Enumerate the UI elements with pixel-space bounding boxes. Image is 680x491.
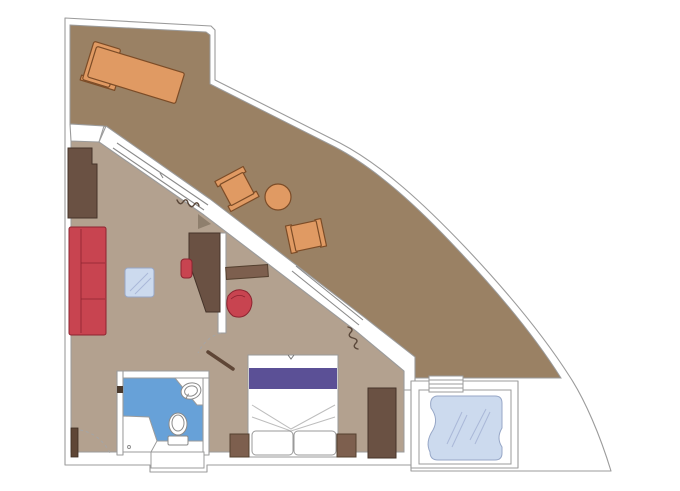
pillow-right (294, 431, 336, 455)
whirlpool-deck (411, 376, 518, 468)
bathroom-door-mark (117, 386, 123, 393)
bathroom-wall-right (203, 378, 209, 455)
glass-coffee-table (125, 268, 154, 297)
desk-chair (181, 259, 192, 278)
terrace-steps (429, 376, 463, 392)
nightstand-right (337, 434, 356, 457)
bathroom-wall-top (117, 371, 209, 378)
floor-plan-page (0, 0, 680, 491)
tub-chair (227, 290, 252, 317)
terrace-living-wall-top (70, 124, 104, 142)
pillow-left (252, 431, 293, 455)
whirlpool-bath (428, 396, 502, 460)
console-shelf (226, 265, 269, 280)
toilet (168, 413, 188, 445)
bathroom-bump-floor (151, 452, 204, 468)
sofa (69, 227, 106, 335)
nightstand-left (230, 434, 249, 457)
double-bed (248, 355, 338, 457)
bedroom-wardrobe (368, 388, 396, 458)
floor-plan-drawing (0, 0, 680, 491)
bathroom-wall-left (117, 371, 123, 455)
terrace-round-table (265, 184, 291, 210)
bed-runner (249, 368, 337, 389)
